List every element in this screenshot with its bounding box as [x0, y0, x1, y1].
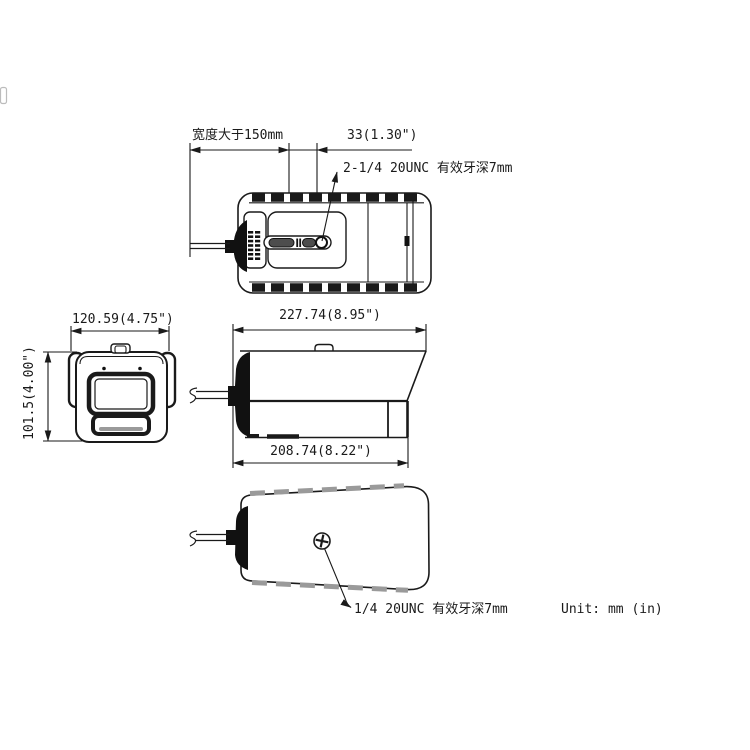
illuminator-window	[93, 416, 149, 434]
slot-oval-right	[303, 239, 316, 248]
note-bottom-thread: 1/4 20UNC 有效牙深7mm	[354, 603, 508, 617]
scan-artifact	[1, 88, 7, 104]
cable-gland-top	[225, 240, 235, 253]
thread-hole-top	[316, 237, 327, 248]
cable-break-symbol-bottom	[190, 531, 197, 546]
front-screw-left	[102, 367, 106, 371]
lens-window	[89, 374, 153, 414]
slot-oval-left	[269, 239, 294, 248]
dim-front-height: 101.5(4.00")	[23, 352, 37, 440]
drawing-canvas: 宽度大于150mm 33(1.30") 2-1/4 20UNC 有效牙深7mm …	[0, 0, 750, 750]
top-bracket-tab	[111, 344, 130, 353]
dim-front-width: 120.59(4.75")	[72, 313, 170, 327]
dim-body-length: 208.74(8.22")	[261, 445, 381, 459]
dim-overall-length: 227.74(8.95")	[270, 309, 390, 323]
back-cap-top	[234, 220, 247, 272]
illuminator-shade	[99, 427, 143, 431]
front-view	[43, 326, 175, 442]
dim-hole-spacing: 33(1.30")	[347, 129, 417, 143]
sunshield-front-slant	[407, 351, 426, 401]
back-cap-side	[228, 352, 250, 437]
bottom-view	[190, 486, 429, 608]
dim-clearance-note: 宽度大于150mm	[192, 129, 283, 143]
back-cap-bottom	[235, 506, 248, 570]
sunshield-tab	[315, 345, 333, 352]
cable-break-symbol-side	[190, 388, 197, 403]
front-screw-right	[138, 367, 142, 371]
cable-gland-bottom	[226, 530, 236, 545]
line-art	[0, 0, 750, 750]
side-latch-mark	[405, 236, 410, 246]
note-top-thread: 2-1/4 20UNC 有效牙深7mm	[343, 162, 512, 176]
unit-note: Unit: mm (in)	[561, 603, 663, 617]
